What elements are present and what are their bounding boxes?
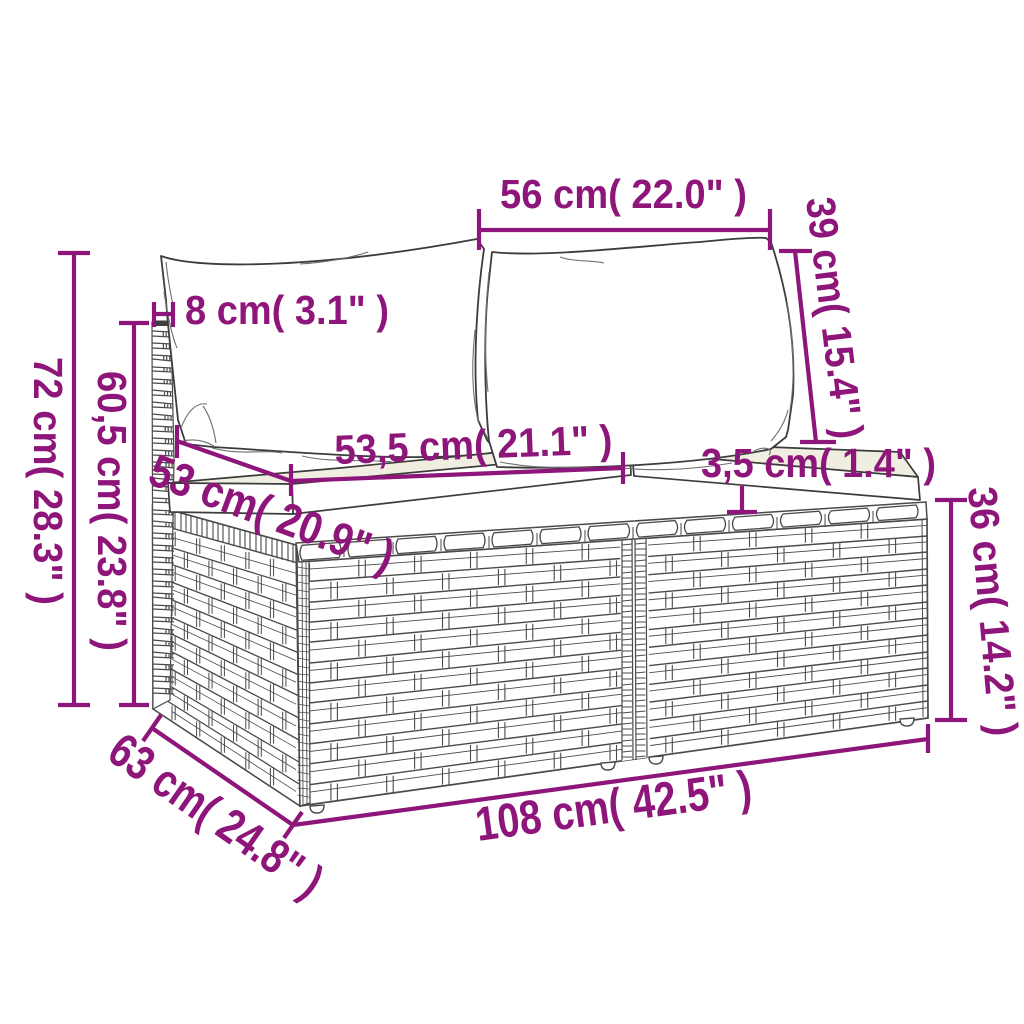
svg-text:3,5 cm( 1.4" ): 3,5 cm( 1.4" ): [701, 440, 936, 486]
svg-text:8 cm( 3.1" ): 8 cm( 3.1" ): [185, 287, 389, 333]
svg-text:60,5 cm( 23.8" ): 60,5 cm( 23.8" ): [89, 371, 135, 651]
svg-text:56 cm( 22.0" ): 56 cm( 22.0" ): [500, 171, 747, 217]
svg-text:72 cm( 28.3" ): 72 cm( 28.3" ): [25, 357, 71, 605]
